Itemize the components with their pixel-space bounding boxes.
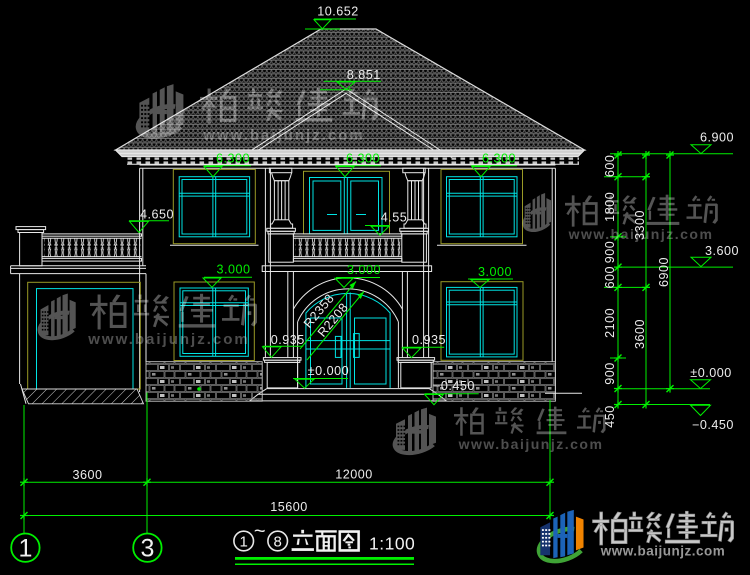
svg-text:1: 1	[18, 535, 32, 563]
svg-text:15600: 15600	[270, 500, 308, 514]
svg-text:1:100: 1:100	[369, 534, 415, 554]
svg-text:1: 1	[240, 534, 248, 551]
svg-text:~: ~	[254, 521, 266, 543]
svg-text:3.000: 3.000	[216, 263, 250, 277]
svg-text:3600: 3600	[633, 319, 647, 349]
svg-text:3: 3	[140, 535, 154, 563]
svg-text:2100: 2100	[603, 308, 617, 338]
svg-text:10.652: 10.652	[317, 5, 359, 19]
svg-text:3.000: 3.000	[478, 265, 512, 279]
svg-text:8: 8	[274, 534, 282, 551]
svg-text:6.300: 6.300	[346, 152, 380, 166]
svg-text:6900: 6900	[657, 257, 671, 287]
svg-text:0.935: 0.935	[412, 333, 446, 347]
svg-text:900: 900	[603, 362, 617, 385]
svg-text:3600: 3600	[72, 468, 102, 482]
svg-text:6.900: 6.900	[700, 131, 734, 145]
svg-text:±0.000: ±0.000	[690, 366, 731, 380]
svg-text:6.300: 6.300	[216, 152, 250, 166]
svg-text:±0.000: ±0.000	[308, 364, 349, 378]
svg-text:6.300: 6.300	[482, 152, 516, 166]
svg-text:0.935: 0.935	[271, 333, 305, 347]
svg-text:www.baijunjz.com: www.baijunjz.com	[202, 127, 364, 144]
svg-text:4.55: 4.55	[381, 211, 408, 225]
svg-text:8.851: 8.851	[347, 68, 381, 82]
svg-text:12000: 12000	[335, 468, 373, 482]
svg-text:3.600: 3.600	[705, 244, 739, 258]
svg-text:−0.450: −0.450	[433, 379, 475, 393]
svg-text:www.baijunjz.com: www.baijunjz.com	[568, 226, 714, 242]
svg-text:4.650: 4.650	[140, 208, 174, 222]
svg-text:3.000: 3.000	[347, 263, 381, 277]
svg-text:www.baijunjz.com: www.baijunjz.com	[87, 331, 249, 348]
svg-text:900: 900	[603, 241, 617, 264]
svg-text:−0.450: −0.450	[692, 418, 734, 432]
svg-text:www.baijunjz.com: www.baijunjz.com	[600, 544, 726, 559]
svg-text:www.baijunjz.com: www.baijunjz.com	[458, 436, 604, 452]
